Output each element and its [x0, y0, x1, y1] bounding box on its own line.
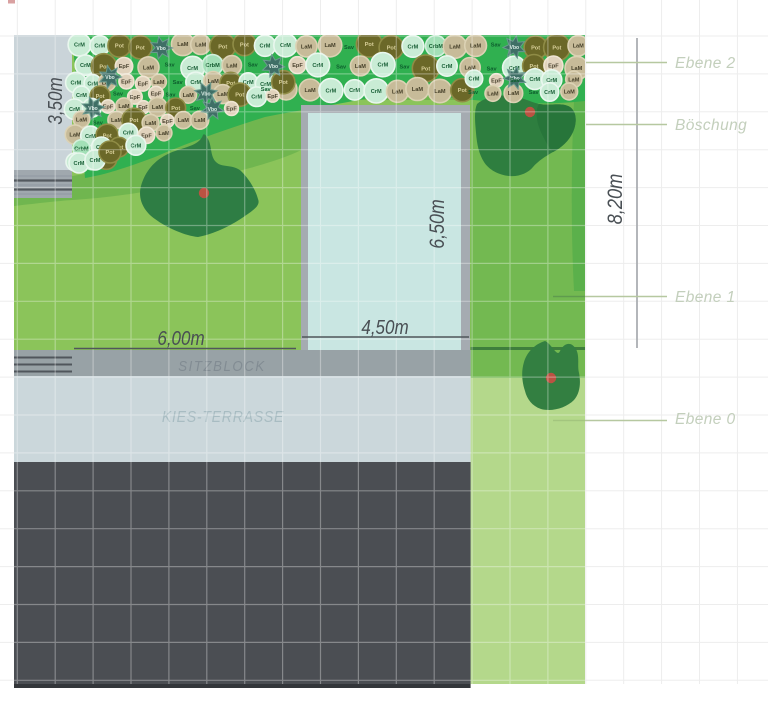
- svg-text:EpF: EpF: [292, 63, 303, 69]
- svg-text:Pot: Pot: [458, 88, 467, 94]
- svg-text:CrM: CrM: [407, 44, 418, 50]
- svg-text:KIES-TERRASSE: KIES-TERRASSE: [162, 408, 284, 426]
- svg-text:EpF: EpF: [103, 105, 114, 111]
- svg-text:CrM: CrM: [371, 89, 382, 95]
- svg-text:6,50m: 6,50m: [426, 199, 450, 249]
- svg-text:EpF: EpF: [267, 94, 278, 100]
- svg-text:CrM: CrM: [74, 161, 85, 167]
- svg-text:LaM: LaM: [305, 88, 317, 94]
- svg-text:8,20m: 8,20m: [604, 174, 628, 225]
- svg-text:CrM: CrM: [469, 77, 480, 83]
- svg-text:EpF: EpF: [162, 119, 173, 125]
- svg-text:LaM: LaM: [76, 117, 88, 123]
- svg-text:LaM: LaM: [564, 90, 576, 96]
- svg-text:Vbo: Vbo: [201, 91, 210, 97]
- svg-text:CrM: CrM: [544, 90, 555, 96]
- svg-text:LaM: LaM: [226, 63, 238, 69]
- svg-text:EpF: EpF: [548, 64, 559, 70]
- svg-text:LaM: LaM: [392, 89, 404, 95]
- svg-text:6,00m: 6,00m: [157, 327, 204, 350]
- svg-text:Sav: Sav: [93, 120, 104, 126]
- svg-text:Ebene 0: Ebene 0: [675, 411, 736, 428]
- svg-text:Sav: Sav: [400, 65, 411, 71]
- svg-text:4,50m: 4,50m: [361, 316, 408, 339]
- svg-text:LaM: LaM: [158, 131, 170, 137]
- svg-text:Pot: Pot: [552, 46, 561, 52]
- svg-text:LaM: LaM: [153, 80, 165, 86]
- svg-text:CrM: CrM: [130, 143, 141, 149]
- svg-text:CrM: CrM: [377, 63, 388, 69]
- svg-text:LaM: LaM: [178, 118, 190, 124]
- svg-text:Pot: Pot: [531, 46, 540, 52]
- svg-text:Sav: Sav: [468, 90, 479, 96]
- svg-text:SITZBLOCK: SITZBLOCK: [178, 357, 266, 374]
- svg-text:CrM: CrM: [74, 43, 85, 49]
- svg-text:Sav: Sav: [336, 64, 347, 70]
- svg-text:CrM: CrM: [529, 77, 540, 83]
- svg-text:Sav: Sav: [491, 43, 502, 49]
- svg-text:Pot: Pot: [218, 44, 227, 50]
- svg-text:Sav: Sav: [529, 90, 540, 96]
- svg-text:Sav: Sav: [113, 92, 124, 98]
- svg-text:LaM: LaM: [217, 92, 229, 98]
- svg-text:Pot: Pot: [171, 106, 180, 112]
- svg-text:CrM: CrM: [280, 43, 291, 49]
- svg-text:Sav: Sav: [173, 80, 184, 86]
- svg-text:Ebene 1: Ebene 1: [675, 289, 736, 306]
- svg-text:Sav: Sav: [165, 63, 176, 69]
- svg-text:LaM: LaM: [301, 44, 313, 50]
- svg-text:Pot: Pot: [136, 45, 145, 51]
- svg-text:Sav: Sav: [166, 92, 177, 98]
- svg-text:Pot: Pot: [421, 66, 430, 72]
- svg-text:LaM: LaM: [143, 65, 155, 71]
- svg-text:Vbo: Vbo: [156, 46, 165, 52]
- svg-text:CrM: CrM: [80, 63, 91, 69]
- svg-text:LaM: LaM: [487, 91, 499, 97]
- svg-text:LaM: LaM: [111, 118, 123, 124]
- svg-text:CrM: CrM: [325, 89, 336, 95]
- svg-text:LaM: LaM: [152, 105, 164, 111]
- svg-text:LaM: LaM: [195, 43, 207, 49]
- svg-text:Sav: Sav: [487, 66, 498, 72]
- svg-text:Pot: Pot: [387, 46, 396, 52]
- svg-text:Sav: Sav: [510, 78, 521, 84]
- svg-text:LaM: LaM: [183, 93, 195, 99]
- svg-text:LaM: LaM: [412, 87, 424, 93]
- svg-text:LaM: LaM: [355, 64, 367, 70]
- svg-text:Vbo: Vbo: [510, 45, 519, 51]
- svg-text:Sav: Sav: [248, 63, 259, 69]
- svg-text:Pot: Pot: [365, 42, 374, 48]
- svg-text:EpF: EpF: [138, 82, 149, 88]
- svg-text:CrM: CrM: [190, 80, 201, 86]
- svg-text:LaM: LaM: [177, 42, 189, 48]
- svg-text:Sav: Sav: [344, 45, 355, 51]
- svg-text:LaM: LaM: [69, 133, 81, 139]
- svg-text:EpF: EpF: [491, 79, 502, 85]
- svg-text:Pot: Pot: [235, 93, 244, 99]
- svg-text:CrM: CrM: [312, 63, 323, 69]
- svg-text:CrM: CrM: [187, 66, 198, 72]
- svg-text:LaM: LaM: [145, 121, 157, 127]
- svg-text:EpF: EpF: [119, 64, 130, 70]
- svg-text:LaM: LaM: [325, 43, 337, 49]
- svg-text:CrM: CrM: [90, 158, 101, 164]
- svg-text:Vbo: Vbo: [269, 64, 278, 70]
- svg-text:CrM: CrM: [251, 95, 262, 101]
- svg-text:Ebene 2: Ebene 2: [675, 55, 736, 72]
- svg-text:Sav: Sav: [190, 106, 201, 112]
- svg-text:CrM: CrM: [76, 93, 87, 99]
- svg-text:Sav: Sav: [261, 87, 272, 93]
- svg-text:EpF: EpF: [151, 92, 162, 98]
- svg-text:LaM: LaM: [434, 89, 446, 95]
- svg-text:Pot: Pot: [115, 44, 124, 50]
- svg-text:CrM: CrM: [94, 44, 105, 50]
- svg-text:CrbM: CrbM: [205, 63, 220, 69]
- svg-text:Vbo: Vbo: [105, 75, 114, 81]
- svg-text:LaM: LaM: [194, 118, 206, 124]
- svg-text:Pot: Pot: [105, 150, 114, 156]
- svg-text:3,50m: 3,50m: [44, 77, 67, 124]
- svg-text:CrbM: CrbM: [429, 44, 444, 50]
- svg-text:CrM: CrM: [260, 44, 271, 50]
- svg-text:LaM: LaM: [573, 44, 585, 50]
- svg-text:Pot: Pot: [279, 80, 288, 86]
- svg-text:LaM: LaM: [449, 45, 461, 51]
- svg-text:Böschung: Böschung: [675, 117, 747, 134]
- svg-text:CrM: CrM: [442, 64, 453, 70]
